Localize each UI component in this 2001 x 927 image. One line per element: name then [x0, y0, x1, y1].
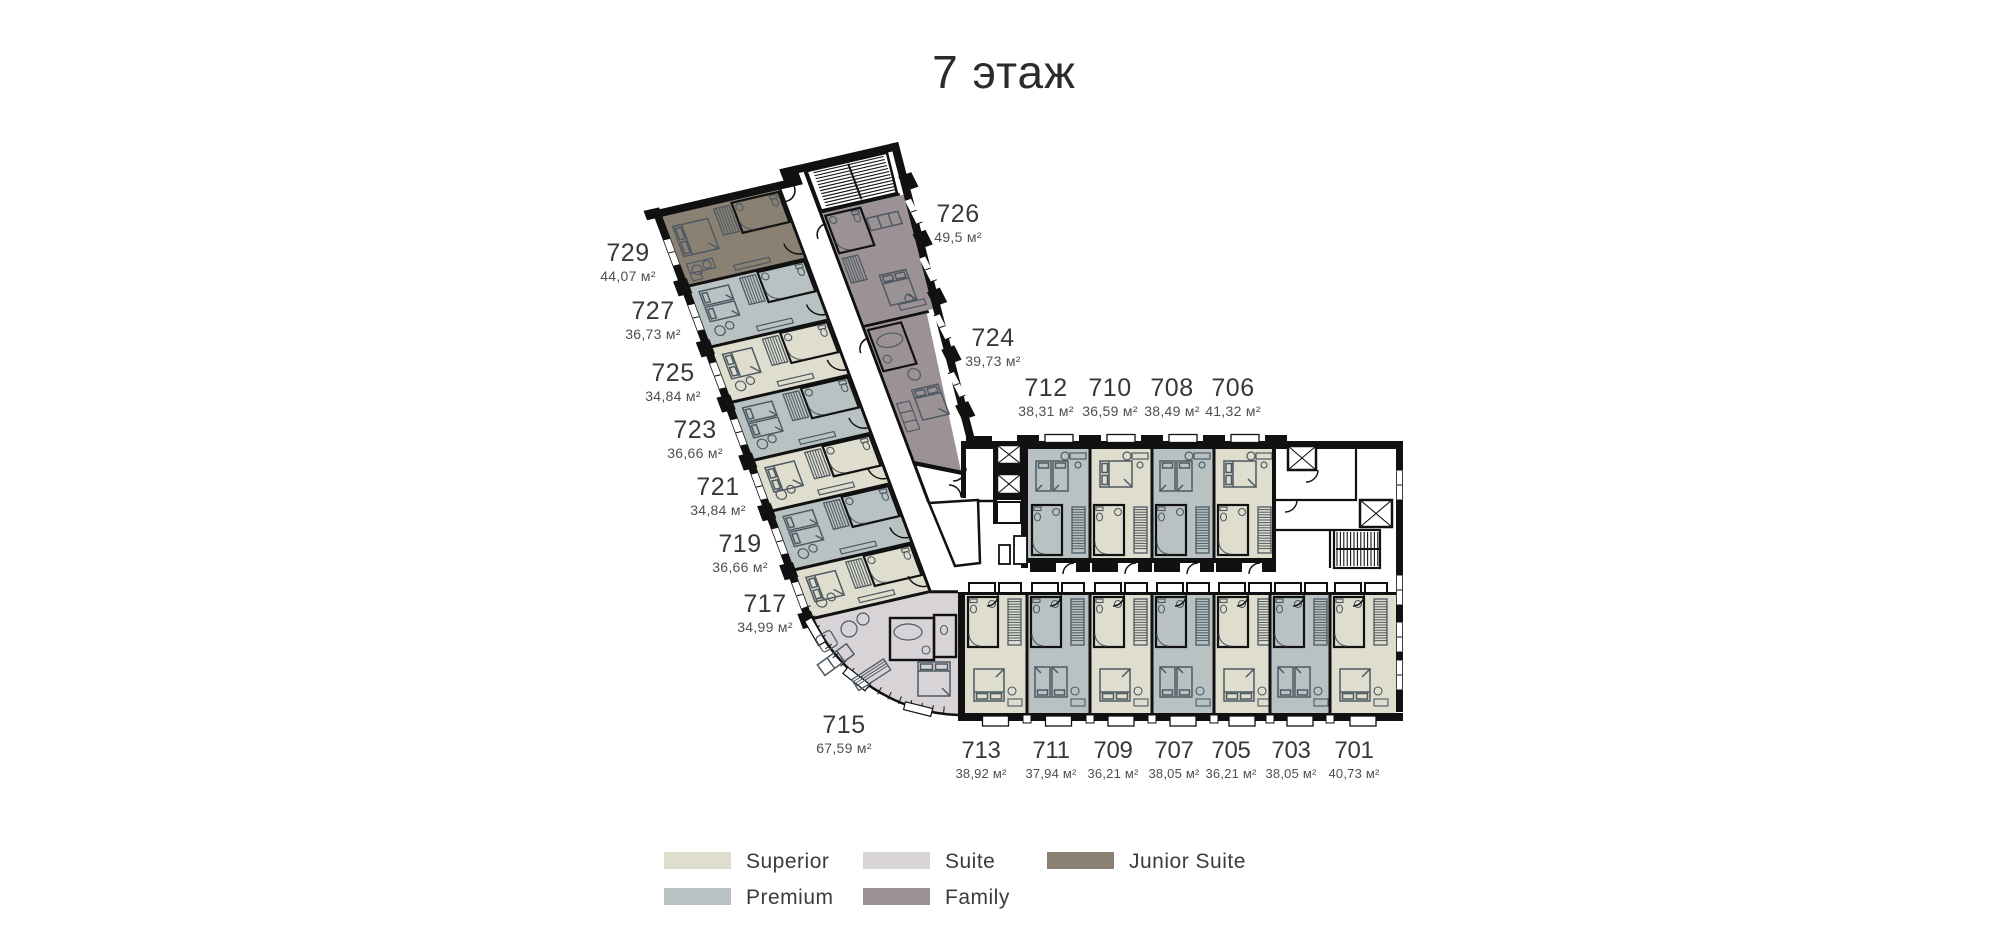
- svg-text:36,73 м²: 36,73 м²: [625, 326, 681, 342]
- svg-text:724: 724: [971, 324, 1014, 352]
- svg-text:49,5 м²: 49,5 м²: [934, 229, 982, 245]
- svg-text:729: 729: [606, 239, 649, 267]
- svg-text:36,66 м²: 36,66 м²: [712, 559, 768, 575]
- svg-text:7 этаж: 7 этаж: [932, 46, 1076, 98]
- svg-text:708: 708: [1150, 374, 1193, 402]
- svg-text:40,73 м²: 40,73 м²: [1328, 766, 1379, 781]
- svg-text:Premium: Premium: [746, 886, 834, 909]
- svg-text:715: 715: [822, 711, 865, 739]
- svg-text:38,49 м²: 38,49 м²: [1144, 403, 1200, 419]
- svg-text:36,66 м²: 36,66 м²: [667, 445, 723, 461]
- svg-text:701: 701: [1334, 737, 1373, 764]
- svg-text:36,21 м²: 36,21 м²: [1205, 766, 1256, 781]
- svg-text:36,59 м²: 36,59 м²: [1082, 403, 1138, 419]
- svg-text:Superior: Superior: [746, 850, 829, 873]
- svg-text:723: 723: [673, 416, 716, 444]
- svg-text:706: 706: [1211, 374, 1254, 402]
- svg-text:38,05 м²: 38,05 м²: [1148, 766, 1199, 781]
- svg-text:713: 713: [961, 737, 1000, 764]
- svg-text:41,32 м²: 41,32 м²: [1205, 403, 1261, 419]
- svg-text:36,21 м²: 36,21 м²: [1087, 766, 1138, 781]
- svg-text:727: 727: [631, 297, 674, 325]
- svg-text:34,84 м²: 34,84 м²: [690, 502, 746, 518]
- svg-text:44,07 м²: 44,07 м²: [600, 268, 656, 284]
- svg-text:38,05 м²: 38,05 м²: [1265, 766, 1316, 781]
- svg-text:711: 711: [1032, 737, 1069, 764]
- svg-text:721: 721: [696, 473, 739, 501]
- svg-text:710: 710: [1088, 374, 1131, 402]
- svg-text:709: 709: [1093, 737, 1132, 764]
- svg-text:Junior Suite: Junior Suite: [1129, 850, 1246, 873]
- svg-text:39,73 м²: 39,73 м²: [965, 353, 1021, 369]
- svg-text:Family: Family: [945, 886, 1010, 909]
- svg-text:703: 703: [1271, 737, 1310, 764]
- svg-text:67,59 м²: 67,59 м²: [816, 740, 872, 756]
- svg-text:Suite: Suite: [945, 850, 995, 873]
- svg-text:707: 707: [1154, 737, 1193, 764]
- svg-text:712: 712: [1024, 374, 1067, 402]
- svg-text:717: 717: [743, 590, 786, 618]
- svg-text:38,92 м²: 38,92 м²: [955, 766, 1006, 781]
- svg-text:38,31 м²: 38,31 м²: [1018, 403, 1074, 419]
- svg-text:726: 726: [936, 200, 979, 228]
- svg-text:719: 719: [718, 530, 761, 558]
- svg-text:34,99 м²: 34,99 м²: [737, 619, 793, 635]
- svg-text:37,94 м²: 37,94 м²: [1025, 766, 1076, 781]
- svg-text:725: 725: [651, 359, 694, 387]
- svg-text:34,84 м²: 34,84 м²: [645, 388, 701, 404]
- svg-text:705: 705: [1211, 737, 1250, 764]
